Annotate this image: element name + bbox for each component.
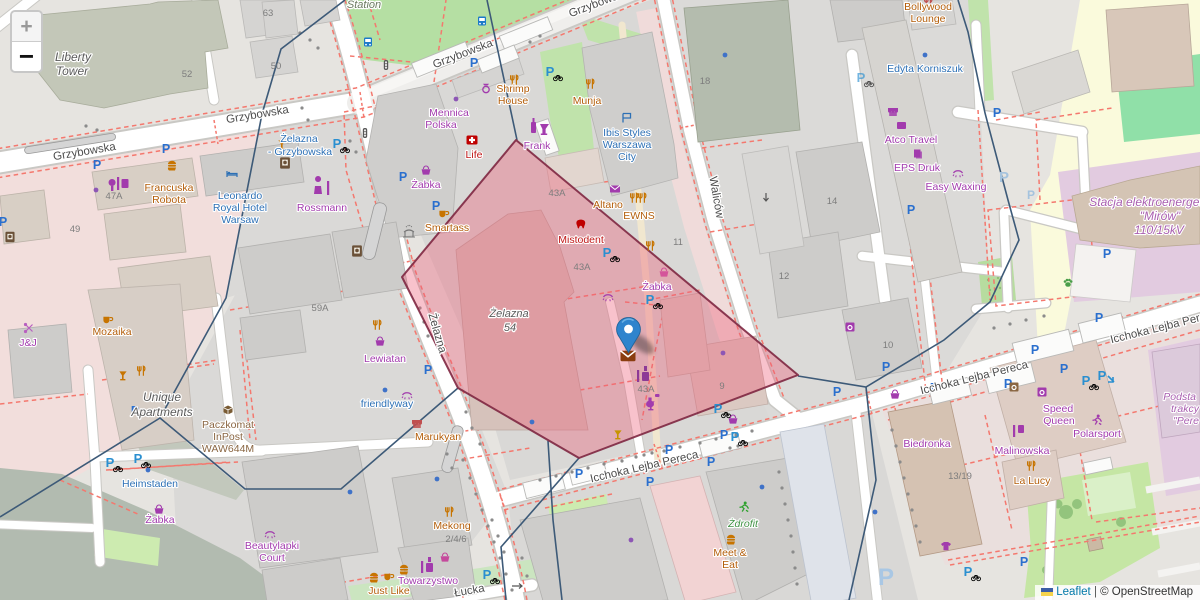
svg-text:10: 10 bbox=[883, 340, 894, 351]
svg-text:Francuska: Francuska bbox=[144, 182, 193, 194]
svg-text:P: P bbox=[907, 203, 915, 217]
svg-text:43A: 43A bbox=[549, 188, 567, 199]
svg-text:Frank: Frank bbox=[524, 140, 552, 152]
svg-text:Easy Waxing: Easy Waxing bbox=[926, 181, 987, 193]
svg-text:14: 14 bbox=[827, 196, 838, 207]
svg-text:P: P bbox=[399, 170, 407, 184]
svg-text:P: P bbox=[0, 215, 7, 229]
svg-text:Mistodent: Mistodent bbox=[558, 234, 604, 246]
svg-text:P: P bbox=[720, 428, 728, 442]
svg-text:P: P bbox=[707, 455, 715, 469]
svg-text:Żabka: Żabka bbox=[642, 280, 671, 293]
svg-text:12: 12 bbox=[779, 271, 790, 282]
svg-text:P: P bbox=[882, 360, 890, 374]
svg-text:Towarzystwo: Towarzystwo bbox=[398, 575, 458, 587]
svg-text:50: 50 bbox=[271, 61, 282, 72]
svg-text:Heimstaden: Heimstaden bbox=[122, 478, 178, 490]
svg-text:P: P bbox=[1060, 362, 1068, 376]
svg-text:Lounge: Lounge bbox=[910, 13, 945, 25]
svg-text:Station: Station bbox=[347, 0, 381, 11]
svg-text:P: P bbox=[857, 70, 866, 85]
svg-text:Lewiatan: Lewiatan bbox=[364, 353, 406, 365]
svg-text:P: P bbox=[603, 245, 612, 260]
svg-text:P: P bbox=[731, 429, 740, 444]
svg-text:House: House bbox=[498, 95, 529, 107]
svg-text:InPost: InPost bbox=[213, 431, 243, 443]
svg-text:13/19: 13/19 bbox=[948, 471, 972, 482]
svg-text:friendlyway: friendlyway bbox=[361, 398, 414, 410]
svg-text:Meet &: Meet & bbox=[713, 547, 746, 559]
svg-text:P: P bbox=[964, 564, 973, 579]
svg-text:Edyta Korniszuk: Edyta Korniszuk bbox=[887, 63, 964, 75]
svg-text:City: City bbox=[618, 151, 637, 163]
svg-text:Mennica: Mennica bbox=[429, 107, 469, 119]
svg-text:La Lucy: La Lucy bbox=[1014, 475, 1052, 487]
svg-text:P: P bbox=[1095, 311, 1103, 325]
svg-text:Queen: Queen bbox=[1043, 415, 1075, 427]
svg-text:J&J: J&J bbox=[19, 337, 37, 349]
svg-text:P: P bbox=[470, 56, 478, 70]
svg-text:43A: 43A bbox=[574, 262, 592, 273]
svg-text:Unique: Unique bbox=[143, 390, 181, 404]
svg-text:P: P bbox=[93, 158, 101, 172]
svg-text:Smartass: Smartass bbox=[425, 222, 469, 234]
svg-text:Polarsport: Polarsport bbox=[1073, 428, 1121, 440]
svg-text:Warsaw: Warsaw bbox=[221, 214, 259, 226]
svg-text:Bollywood: Bollywood bbox=[904, 1, 952, 13]
svg-text:EWNS: EWNS bbox=[623, 210, 655, 222]
svg-text:Żelazna: Żelazna bbox=[280, 132, 318, 145]
svg-text:Atco Travel: Atco Travel bbox=[885, 134, 938, 146]
svg-text:Mekong: Mekong bbox=[433, 520, 471, 532]
svg-text:Court: Court bbox=[259, 552, 285, 564]
svg-text:P: P bbox=[134, 451, 143, 466]
svg-text:Rossmann: Rossmann bbox=[297, 202, 347, 214]
svg-text:P: P bbox=[1027, 188, 1035, 202]
svg-text:Mozaika: Mozaika bbox=[92, 326, 131, 338]
svg-text:43A: 43A bbox=[638, 384, 656, 395]
svg-text:P: P bbox=[878, 564, 894, 591]
svg-text:11: 11 bbox=[673, 237, 683, 248]
svg-text:P: P bbox=[1020, 555, 1028, 569]
svg-text:P: P bbox=[714, 401, 723, 416]
svg-text:Malinowska: Malinowska bbox=[995, 445, 1050, 457]
svg-text:Royal Hotel: Royal Hotel bbox=[213, 202, 267, 214]
svg-text:Żabka: Żabka bbox=[411, 178, 440, 191]
svg-text:9: 9 bbox=[719, 381, 724, 392]
svg-text:P: P bbox=[1031, 343, 1039, 357]
svg-text:Marukyan: Marukyan bbox=[415, 431, 461, 443]
svg-text:P: P bbox=[106, 455, 115, 470]
svg-text:18: 18 bbox=[700, 76, 711, 87]
svg-text:WAW644M: WAW644M bbox=[202, 443, 254, 455]
svg-text:49: 49 bbox=[70, 224, 81, 235]
svg-text:2/4/6: 2/4/6 bbox=[445, 534, 466, 545]
svg-text:P: P bbox=[483, 567, 492, 582]
svg-text:P: P bbox=[833, 385, 841, 399]
svg-text:P: P bbox=[162, 142, 170, 156]
svg-text:Shrimp: Shrimp bbox=[496, 83, 529, 95]
svg-text:P: P bbox=[1082, 373, 1091, 388]
svg-text:Paczkomat: Paczkomat bbox=[202, 419, 254, 431]
svg-text:Podsta: Podsta bbox=[1163, 391, 1196, 403]
svg-text:Żelazna: Żelazna bbox=[488, 308, 528, 320]
svg-text:Żabka: Żabka bbox=[145, 513, 174, 526]
svg-text:P: P bbox=[432, 199, 440, 213]
svg-text:Leonardo: Leonardo bbox=[218, 190, 263, 202]
svg-text:Eat: Eat bbox=[722, 559, 738, 571]
svg-text:59A: 59A bbox=[312, 303, 330, 314]
svg-text:Speed: Speed bbox=[1043, 403, 1074, 415]
svg-text:P: P bbox=[1098, 368, 1107, 383]
svg-text:Munja: Munja bbox=[573, 95, 602, 107]
svg-text:Warszawa: Warszawa bbox=[603, 139, 652, 151]
svg-text:Beautylapki: Beautylapki bbox=[245, 540, 299, 552]
svg-text:52: 52 bbox=[182, 69, 193, 80]
svg-text:Life: Life bbox=[466, 149, 483, 161]
svg-text:P: P bbox=[646, 475, 654, 489]
svg-text:trakcy: trakcy bbox=[1171, 403, 1200, 415]
svg-text:P: P bbox=[546, 64, 555, 79]
svg-text:P: P bbox=[993, 106, 1001, 120]
svg-text:"Mirów": "Mirów" bbox=[1140, 209, 1181, 223]
svg-text:54: 54 bbox=[504, 322, 516, 334]
svg-text:Biedronka: Biedronka bbox=[903, 438, 950, 450]
svg-text:P: P bbox=[1103, 247, 1111, 261]
svg-text:EPS Druk: EPS Druk bbox=[894, 162, 941, 174]
svg-text:Robota: Robota bbox=[152, 194, 186, 206]
svg-text:Altano: Altano bbox=[593, 199, 623, 211]
svg-text:P: P bbox=[646, 292, 655, 307]
svg-text:P: P bbox=[424, 363, 432, 377]
svg-text:P: P bbox=[333, 136, 342, 151]
svg-text:Apartments: Apartments bbox=[130, 405, 192, 419]
svg-text:- Grzybowska: - Grzybowska bbox=[268, 146, 332, 158]
svg-text:110/15kV: 110/15kV bbox=[1134, 223, 1185, 237]
svg-text:Tower: Tower bbox=[56, 64, 89, 78]
svg-text:Polska: Polska bbox=[425, 119, 457, 131]
svg-text:Żdrofit: Żdrofit bbox=[727, 518, 759, 530]
svg-text:"Pere: "Pere bbox=[1173, 415, 1199, 427]
svg-text:47A: 47A bbox=[106, 191, 124, 202]
svg-text:Stacja elektroenerget: Stacja elektroenerget bbox=[1089, 195, 1200, 209]
svg-text:Ibis Styles: Ibis Styles bbox=[603, 127, 651, 139]
svg-text:P: P bbox=[575, 467, 583, 481]
svg-text:Liberty: Liberty bbox=[55, 50, 92, 64]
svg-text:63: 63 bbox=[263, 8, 274, 19]
svg-text:P: P bbox=[999, 169, 1009, 186]
